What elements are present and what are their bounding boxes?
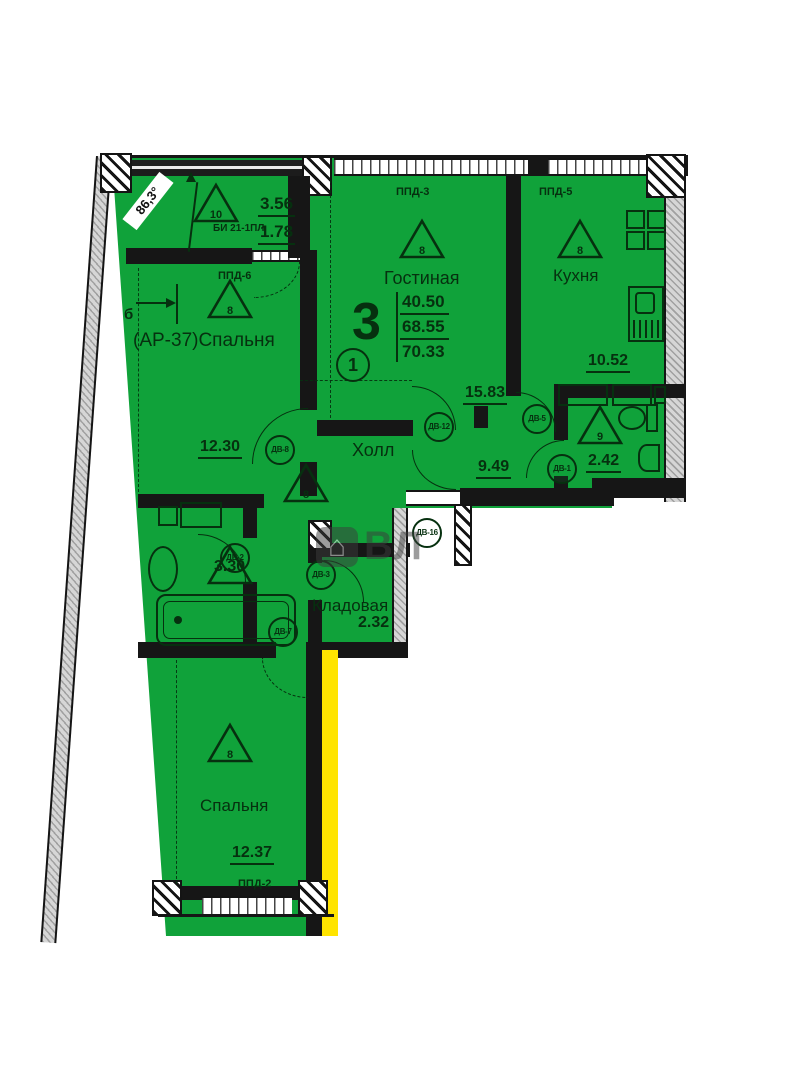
room-name-living: Гостиная [384, 268, 460, 289]
window-label-ppd6: ППД-6 [218, 270, 251, 282]
dashed-line [330, 180, 331, 418]
room-area-bedroomB: 12.37 [230, 844, 274, 865]
window-label-ppd2: ППД-2 [238, 878, 271, 890]
balcony-unit-label: БИ 21-1ПЛ [213, 223, 264, 234]
wall-entrance-stub [454, 504, 472, 566]
floor-type-triangle-hall: 8 [282, 462, 330, 504]
stamp-divider [396, 292, 398, 362]
room-name-hall: Холл [352, 440, 394, 461]
wc-cabinet-icon [558, 384, 608, 406]
floor-type-triangle-kitchen: 8 [556, 218, 604, 260]
column-top-right [646, 154, 686, 198]
stamp-room-count: 3 [352, 292, 381, 352]
wall-left-exterior-slanted [40, 156, 112, 943]
door-tag-dv1: ДВ-1 [547, 454, 577, 484]
stamp-living-area: 40.50 [400, 290, 449, 315]
wall-stub-hall [474, 406, 488, 428]
floor-type-triangle-balcony: 10 [192, 182, 240, 224]
bath-cabinet-icon [158, 506, 178, 526]
room-area-kitchen: 10.52 [586, 352, 630, 373]
balcony-glazing [110, 160, 310, 176]
bathtub-icon [156, 594, 296, 646]
room-name-bedroomL: (АР-37)Спальня [133, 330, 275, 352]
balcony-area-reduced: 1.78 [258, 222, 295, 245]
bathtub-drain-icon [174, 616, 182, 624]
window-label-ppd5: ППД-5 [539, 186, 572, 198]
bath-sink-icon [148, 546, 178, 592]
floor-type-triangle-wc: 9 [576, 404, 624, 446]
section-marker-label: б [124, 306, 133, 323]
stamp-total-area: 70.33 [400, 340, 449, 363]
dashed-line [176, 660, 177, 884]
toilet-bowl-icon [618, 406, 646, 430]
room-area-bedroomL: 12.30 [198, 438, 242, 459]
stamp-apartment-area: 68.55 [400, 315, 449, 340]
wc-washer-icon [612, 384, 652, 406]
stove-icon [626, 210, 666, 250]
room-name-kitchen: Кухня [553, 266, 599, 286]
column-bottom-left [152, 880, 182, 916]
window-bedroomB [202, 896, 292, 916]
door-tag-dv5: ДВ-5 [522, 404, 552, 434]
washing-machine-icon [180, 502, 222, 528]
entrance-threshold [406, 490, 460, 506]
door-tag-dv12: ДВ-12 [424, 412, 454, 442]
stamp-values: 40.50 68.55 70.33 [400, 290, 449, 363]
door-tag-dv8: ДВ-8 [265, 435, 295, 465]
wc-shelf-icon [654, 386, 666, 404]
floor-type-triangle-living: 8 [398, 218, 446, 260]
column-bottom-right [298, 880, 328, 916]
room-area-storage: 2.32 [356, 614, 391, 633]
floor-type-triangle-bedroomL: 8 [206, 278, 254, 320]
watermark-text: ВЛ [364, 524, 424, 569]
toilet-tank-icon [646, 404, 658, 432]
floor-type-triangle-bedroomB: 8 [206, 722, 254, 764]
room-name-bedroomB: Спальня [200, 796, 268, 816]
room-area-bathroom: 3.30 [212, 558, 247, 577]
wall-right-exterior [664, 156, 686, 502]
wc-sink-icon [638, 444, 660, 472]
stamp-position-circle: 1 [336, 348, 370, 382]
wall-hall-bottom [460, 488, 614, 506]
wall-top-segment [528, 158, 550, 176]
column-top-left [100, 153, 132, 193]
window-label-ppd3: ППД-3 [396, 186, 429, 198]
section-marker-arrow-icon [166, 298, 176, 308]
arrow-up-icon [186, 172, 196, 182]
wall-living-kitchen [506, 174, 521, 396]
wall-living-bottom [317, 420, 413, 436]
balcony-area-full: 3.56 [258, 194, 295, 217]
room-area-wc: 2.42 [586, 452, 621, 473]
house-icon: ⌂ [316, 527, 358, 567]
wall-balcony-right [288, 176, 310, 258]
wall-bathroom-right-upper [243, 508, 257, 538]
window-living [334, 158, 530, 176]
room-name-storage: Кладовая [312, 596, 388, 616]
section-marker-tick [176, 284, 178, 324]
kitchen-sink-icon [628, 286, 664, 342]
room-area-living: 15.83 [463, 384, 507, 405]
wall-bedroomL-living [300, 250, 317, 410]
room-area-hall: 9.49 [476, 458, 511, 479]
floorplan: ДВ-8 ДВ-12 ДВ-5 ДВ-1 ДВ-16 ДВ-2 ДВ-3 ДВ-… [0, 0, 795, 1080]
watermark: ⌂ ВЛ [316, 524, 424, 569]
